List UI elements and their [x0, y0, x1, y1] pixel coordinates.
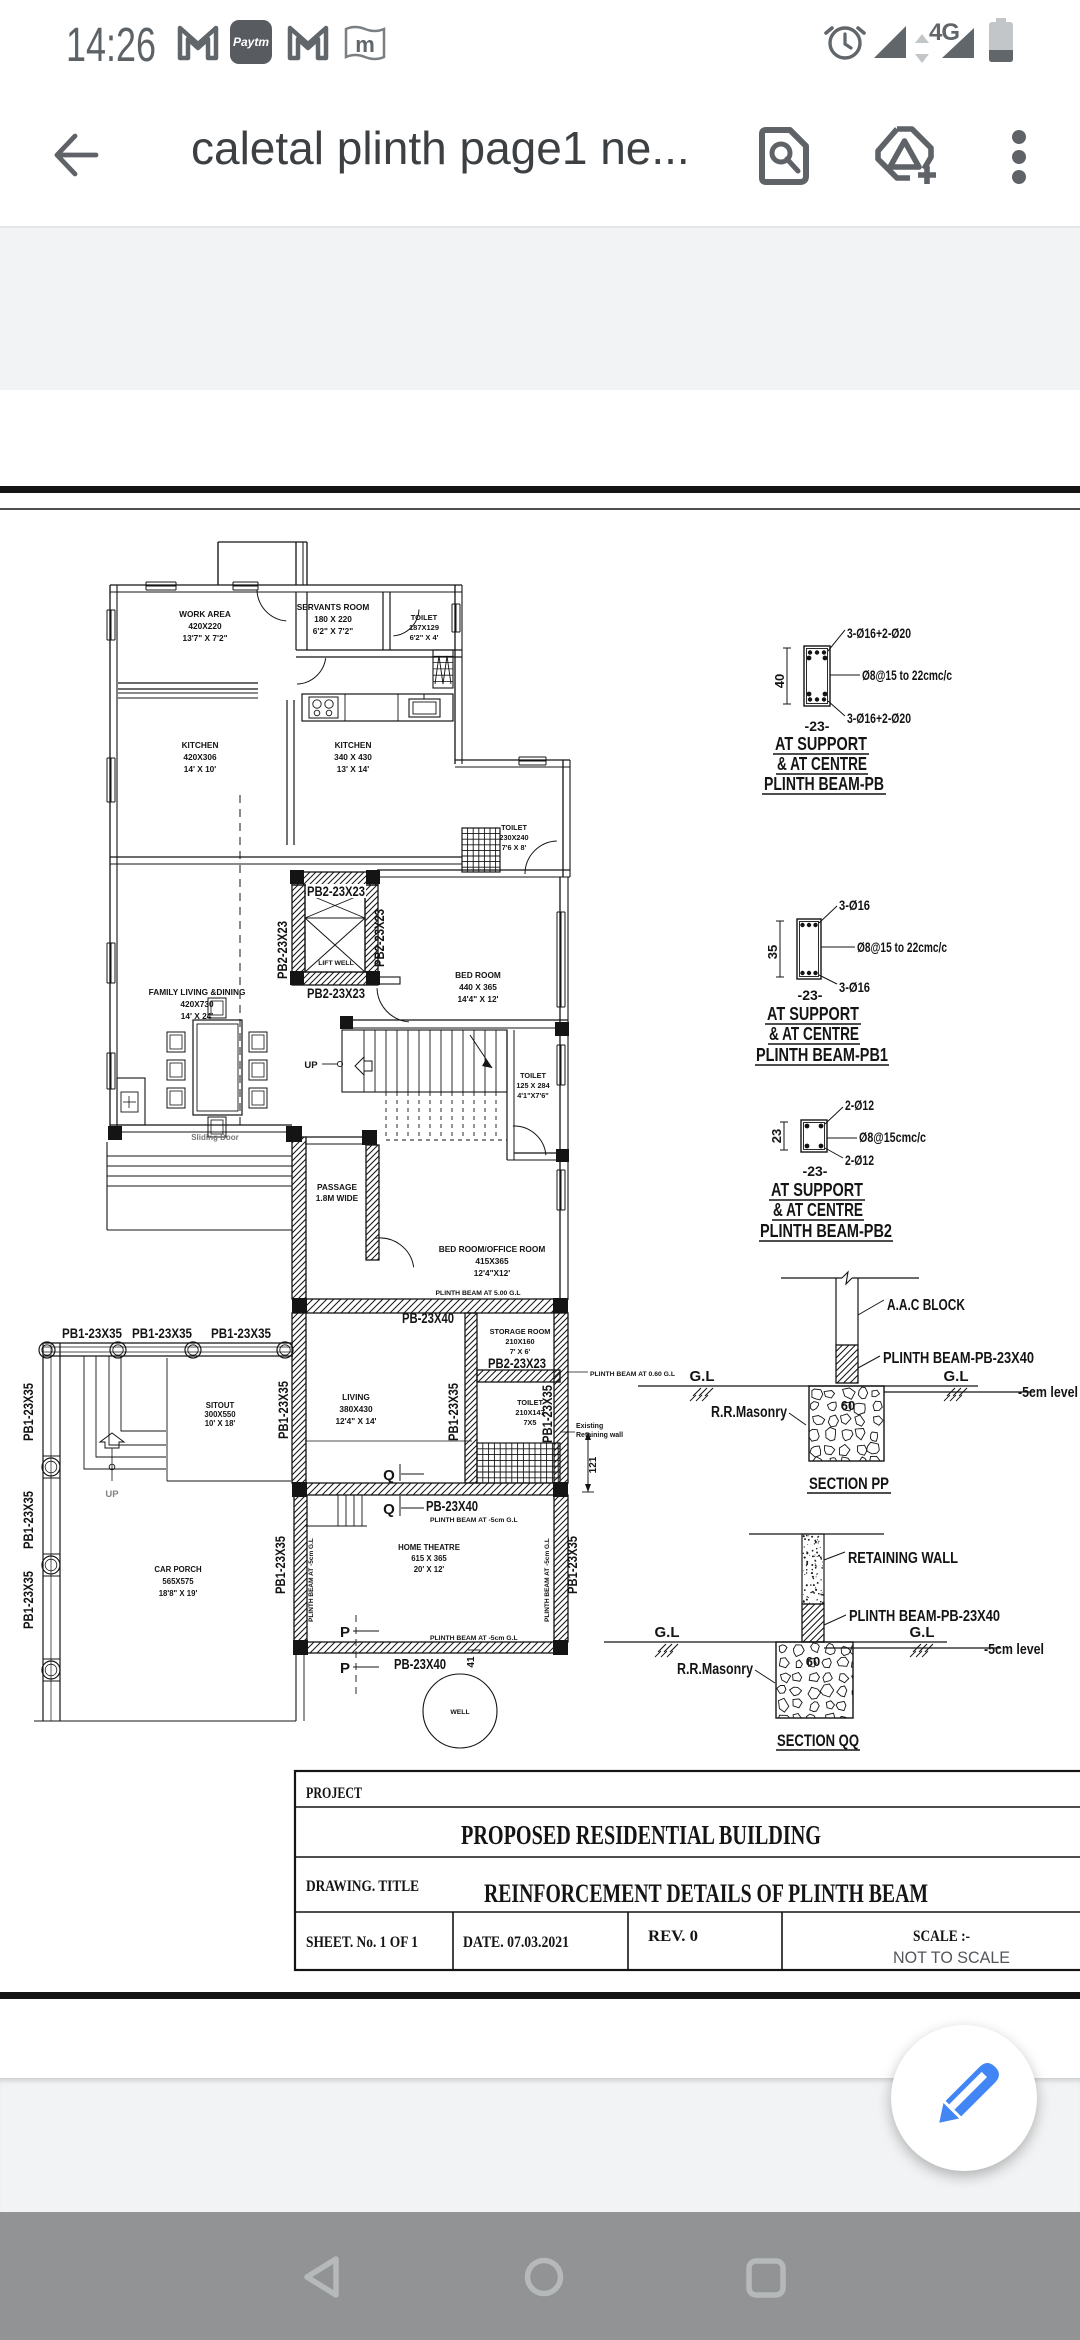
svg-text:PB1-23X35: PB1-23X35 — [132, 1325, 192, 1341]
svg-text:PROJECT: PROJECT — [306, 1785, 362, 1802]
svg-text:187X129: 187X129 — [409, 623, 439, 632]
svg-text:615 X 365: 615 X 365 — [411, 1554, 447, 1563]
svg-text:3-Ø16+2-Ø20: 3-Ø16+2-Ø20 — [847, 711, 911, 726]
svg-text:PB-23X40: PB-23X40 — [394, 1656, 446, 1673]
svg-text:6'2" X 7'2": 6'2" X 7'2" — [313, 626, 353, 636]
svg-text:14' X 10': 14' X 10' — [184, 764, 217, 774]
svg-text:340 X 430: 340 X 430 — [334, 752, 372, 762]
svg-text:210X160: 210X160 — [505, 1337, 534, 1346]
svg-text:23: 23 — [769, 1129, 784, 1143]
svg-text:13'7" X 7'2": 13'7" X 7'2" — [182, 633, 227, 643]
svg-text:Retaining wall: Retaining wall — [576, 1432, 623, 1439]
svg-text:P: P — [340, 1624, 350, 1641]
svg-text:DRAWING. TITLE: DRAWING. TITLE — [306, 1878, 419, 1895]
svg-text:380X430: 380X430 — [339, 1404, 373, 1414]
svg-text:PB2-23X23: PB2-23X23 — [307, 986, 365, 1001]
svg-text:WORK AREA: WORK AREA — [179, 609, 231, 619]
svg-text:AT SUPPORT: AT SUPPORT — [771, 1180, 863, 1200]
svg-text:& AT CENTRE: & AT CENTRE — [773, 1200, 863, 1220]
svg-text:R.R.Masonry: R.R.Masonry — [711, 1404, 787, 1421]
svg-text:SITOUT: SITOUT — [206, 1401, 235, 1410]
svg-text:12'4"X12': 12'4"X12' — [474, 1268, 511, 1278]
svg-text:m: m — [355, 32, 375, 57]
svg-text:PLINTH BEAM-PB2: PLINTH BEAM-PB2 — [760, 1221, 892, 1241]
svg-text:-5cm level: -5cm level — [1018, 1384, 1078, 1401]
svg-text:PLINTH BEAM-PB-23X40: PLINTH BEAM-PB-23X40 — [849, 1608, 1000, 1625]
svg-text:R.R.Masonry: R.R.Masonry — [677, 1661, 753, 1678]
svg-text:PLINTH BEAM AT 0.60 G.L: PLINTH BEAM AT 0.60 G.L — [590, 1371, 675, 1378]
svg-text:STORAGE ROOM: STORAGE ROOM — [490, 1327, 551, 1336]
svg-text:AT SUPPORT: AT SUPPORT — [775, 734, 867, 754]
svg-text:LIVING: LIVING — [342, 1392, 370, 1402]
svg-text:G.L: G.L — [910, 1624, 935, 1641]
svg-text:565X575: 565X575 — [162, 1577, 194, 1586]
svg-text:Sliding Door: Sliding Door — [191, 1133, 239, 1142]
svg-text:PB1-23X35: PB1-23X35 — [21, 1571, 36, 1629]
svg-text:230X240: 230X240 — [499, 833, 528, 842]
svg-text:PLINTH BEAM-PB1: PLINTH BEAM-PB1 — [756, 1045, 888, 1065]
svg-text:PB1-23X35: PB1-23X35 — [565, 1536, 580, 1594]
svg-text:TOILET: TOILET — [501, 823, 527, 832]
svg-text:Ø8@15cmc/c: Ø8@15cmc/c — [859, 1130, 926, 1145]
svg-text:-23-: -23- — [803, 1163, 828, 1179]
svg-text:WELL: WELL — [450, 1709, 469, 1716]
svg-text:3-Ø16: 3-Ø16 — [839, 980, 870, 995]
svg-text:125 X 284: 125 X 284 — [516, 1081, 550, 1090]
svg-text:1.8M WIDE: 1.8M WIDE — [316, 1193, 359, 1203]
svg-text:PB1-23X35: PB1-23X35 — [21, 1383, 36, 1441]
svg-text:40: 40 — [772, 674, 787, 688]
svg-text:Existing: Existing — [576, 1423, 603, 1430]
svg-text:PLINTH BEAM AT -5cm G.L: PLINTH BEAM AT -5cm G.L — [430, 1635, 518, 1642]
svg-text:10' X 18': 10' X 18' — [205, 1419, 236, 1428]
svg-text:KITCHEN: KITCHEN — [182, 740, 219, 750]
svg-text:Q: Q — [383, 1467, 395, 1484]
svg-text:AT SUPPORT: AT SUPPORT — [767, 1004, 859, 1024]
svg-text:60: 60 — [841, 1398, 855, 1413]
svg-text:P: P — [340, 1660, 350, 1677]
svg-text:G.L: G.L — [690, 1368, 715, 1385]
svg-text:PB1-23X35: PB1-23X35 — [273, 1536, 288, 1594]
svg-text:PASSAGE: PASSAGE — [317, 1182, 357, 1192]
svg-text:-23-: -23- — [805, 718, 830, 734]
svg-text:DATE. 07.03.2021: DATE. 07.03.2021 — [463, 1934, 569, 1951]
svg-text:420X306: 420X306 — [183, 752, 217, 762]
svg-text:PB2-23X23: PB2-23X23 — [275, 921, 290, 979]
svg-text:PLINTH BEAM-PB-23X40: PLINTH BEAM-PB-23X40 — [883, 1350, 1034, 1367]
svg-text:PB1-23X35: PB1-23X35 — [276, 1381, 291, 1439]
svg-text:12'4" X 14': 12'4" X 14' — [335, 1416, 376, 1426]
svg-text:PB2-23X23: PB2-23X23 — [488, 1355, 546, 1371]
svg-text:14:26: 14:26 — [66, 19, 156, 68]
svg-text:PB-23X40: PB-23X40 — [402, 1310, 454, 1327]
svg-text:PROPOSED RESIDENTIAL BUILDING: PROPOSED RESIDENTIAL BUILDING — [461, 1820, 821, 1850]
svg-text:2-Ø12: 2-Ø12 — [845, 1153, 874, 1168]
svg-text:TOILET: TOILET — [517, 1398, 543, 1407]
svg-text:41: 41 — [466, 1656, 477, 1668]
svg-text:TOILET: TOILET — [411, 613, 438, 622]
svg-text:Ø8@15 to 22cmc/c: Ø8@15 to 22cmc/c — [857, 940, 947, 955]
svg-text:PB-23X40: PB-23X40 — [426, 1498, 478, 1515]
svg-text:35: 35 — [765, 945, 780, 959]
svg-text:REV. 0: REV. 0 — [648, 1928, 698, 1945]
svg-text:CAR PORCH: CAR PORCH — [154, 1565, 202, 1574]
svg-text:13' X 14': 13' X 14' — [337, 764, 370, 774]
svg-text:SCALE :-: SCALE :- — [913, 1928, 970, 1945]
svg-text:Ø8@15 to 22cmc/c: Ø8@15 to 22cmc/c — [862, 668, 952, 683]
svg-text:SERVANTS ROOM: SERVANTS ROOM — [297, 602, 370, 612]
svg-text:PLINTH BEAM AT -5cm G.L: PLINTH BEAM AT -5cm G.L — [544, 1538, 551, 1622]
svg-text:7'6 X 8': 7'6 X 8' — [502, 843, 527, 852]
svg-text:PB1-23X35: PB1-23X35 — [211, 1325, 271, 1341]
svg-text:TOILET: TOILET — [520, 1071, 546, 1080]
svg-text:PLINTH BEAM AT 5.00 G.L: PLINTH BEAM AT 5.00 G.L — [436, 1290, 521, 1297]
svg-text:RETAINING WALL: RETAINING WALL — [848, 1550, 958, 1567]
svg-text:210X147: 210X147 — [515, 1408, 544, 1417]
svg-text:NOT TO SCALE: NOT TO SCALE — [893, 1948, 1010, 1967]
svg-text:180 X 220: 180 X 220 — [314, 614, 352, 624]
svg-text:REINFORCEMENT DETAILS OF PLINT: REINFORCEMENT DETAILS OF PLINTH BEAM — [484, 1879, 928, 1908]
svg-text:PB1-23X35: PB1-23X35 — [21, 1491, 36, 1549]
svg-text:BED ROOM: BED ROOM — [455, 970, 501, 980]
svg-text:& AT CENTRE: & AT CENTRE — [769, 1024, 859, 1044]
svg-text:G.L: G.L — [944, 1368, 969, 1385]
svg-text:60: 60 — [806, 1654, 820, 1669]
svg-text:HOME THEATRE: HOME THEATRE — [398, 1543, 460, 1552]
svg-text:PB2-23X23: PB2-23X23 — [372, 909, 387, 967]
svg-text:UP: UP — [304, 1060, 318, 1071]
svg-text:PB1-23X35: PB1-23X35 — [62, 1325, 122, 1341]
svg-text:PLINTH BEAM AT -5cm G.L: PLINTH BEAM AT -5cm G.L — [308, 1538, 315, 1622]
svg-text:420X730: 420X730 — [180, 999, 214, 1009]
svg-text:420X220: 420X220 — [188, 621, 222, 631]
svg-text:6'2" X 4': 6'2" X 4' — [410, 633, 439, 642]
svg-text:LIFT WELL: LIFT WELL — [318, 960, 354, 967]
svg-text:SHEET. No. 1 OF 1: SHEET. No. 1 OF 1 — [306, 1934, 418, 1951]
svg-text:KITCHEN: KITCHEN — [335, 740, 372, 750]
svg-text:SECTION PP: SECTION PP — [809, 1474, 889, 1493]
svg-text:4'1"X7'6": 4'1"X7'6" — [517, 1091, 549, 1100]
svg-text:G.L: G.L — [655, 1624, 680, 1641]
svg-text:A.A.C BLOCK: A.A.C BLOCK — [887, 1297, 966, 1314]
svg-text:PB2-23X23: PB2-23X23 — [307, 884, 365, 899]
svg-text:PLINTH BEAM-PB: PLINTH BEAM-PB — [764, 774, 884, 794]
svg-text:18'8" X 19': 18'8" X 19' — [159, 1589, 198, 1598]
svg-text:415X365: 415X365 — [475, 1256, 509, 1266]
svg-text:2-Ø12: 2-Ø12 — [845, 1098, 874, 1113]
svg-text:-23-: -23- — [798, 987, 823, 1003]
svg-text:PB1-23X35: PB1-23X35 — [446, 1383, 461, 1441]
svg-text:121: 121 — [588, 1456, 599, 1473]
svg-text:3-Ø16+2-Ø20: 3-Ø16+2-Ø20 — [847, 626, 911, 641]
svg-text:UP: UP — [105, 1489, 119, 1500]
svg-text:20' X 12': 20' X 12' — [414, 1565, 445, 1574]
svg-text:300X550: 300X550 — [204, 1410, 236, 1419]
svg-text:FAMILY LIVING &DINING: FAMILY LIVING &DINING — [149, 987, 246, 997]
svg-text:PLINTH BEAM AT -5cm G.L: PLINTH BEAM AT -5cm G.L — [430, 1517, 518, 1524]
svg-text:7X5: 7X5 — [524, 1418, 537, 1427]
svg-text:440 X 365: 440 X 365 — [459, 982, 497, 992]
svg-text:& AT CENTRE: & AT CENTRE — [777, 754, 867, 774]
svg-text:3-Ø16: 3-Ø16 — [839, 898, 870, 913]
svg-text:BED ROOM/OFFICE ROOM: BED ROOM/OFFICE ROOM — [439, 1244, 546, 1254]
svg-text:Q: Q — [383, 1501, 395, 1518]
svg-text:-5cm level: -5cm level — [984, 1641, 1044, 1658]
svg-text:14'4" X 12': 14'4" X 12' — [457, 994, 498, 1004]
svg-text:SECTION QQ: SECTION QQ — [777, 1731, 859, 1750]
